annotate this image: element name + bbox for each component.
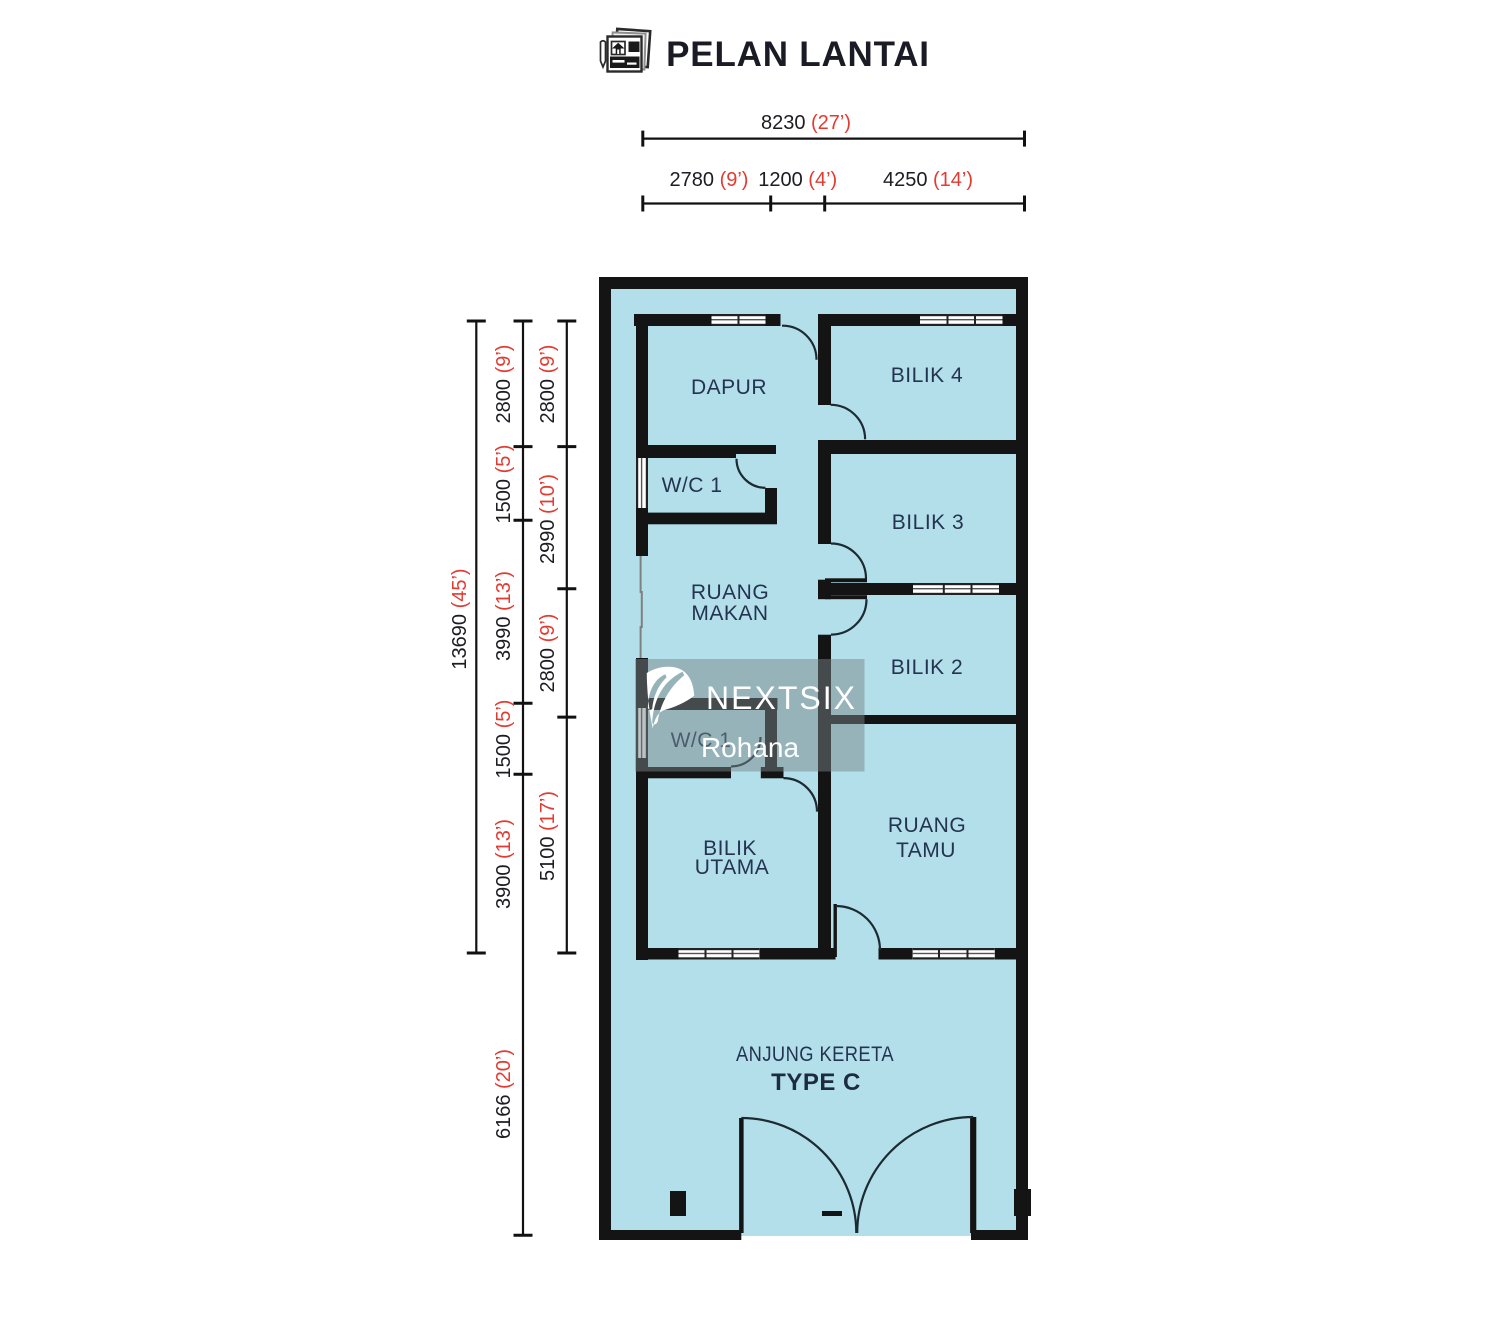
svg-text:MAKAN: MAKAN xyxy=(691,602,768,625)
svg-text:3990 (13’): 3990 (13’) xyxy=(493,571,515,661)
svg-text:BILIK 4: BILIK 4 xyxy=(891,364,963,387)
svg-text:TYPE C: TYPE C xyxy=(771,1069,861,1096)
svg-text:1500 (5’): 1500 (5’) xyxy=(493,445,515,524)
svg-text:ANJUNG KERETA: ANJUNG KERETA xyxy=(736,1043,894,1066)
svg-text:RUANG: RUANG xyxy=(691,581,769,604)
svg-text:6166 (20’): 6166 (20’) xyxy=(493,1049,515,1139)
svg-text:TAMU: TAMU xyxy=(896,839,956,862)
svg-text:2990 (10’): 2990 (10’) xyxy=(537,474,559,564)
svg-text:2800 (9’): 2800 (9’) xyxy=(537,345,559,424)
svg-text:2780 (9’): 2780 (9’) xyxy=(670,169,749,191)
svg-text:2800 (9’): 2800 (9’) xyxy=(537,614,559,693)
svg-text:5100 (17’): 5100 (17’) xyxy=(537,791,559,881)
svg-text:1200 (4’): 1200 (4’) xyxy=(758,169,837,191)
svg-text:3900 (13’): 3900 (13’) xyxy=(493,819,515,909)
svg-text:4250 (14’): 4250 (14’) xyxy=(883,169,973,191)
svg-text:13690 (45’): 13690 (45’) xyxy=(449,568,471,669)
svg-text:NEXTSIX: NEXTSIX xyxy=(706,680,857,716)
svg-text:BILIK 2: BILIK 2 xyxy=(891,656,963,679)
svg-text:PELAN LANTAI: PELAN LANTAI xyxy=(666,35,930,74)
svg-text:DAPUR: DAPUR xyxy=(691,376,767,399)
svg-text:UTAMA: UTAMA xyxy=(695,856,769,879)
svg-text:1500 (5’): 1500 (5’) xyxy=(493,700,515,779)
svg-text:8230 (27’): 8230 (27’) xyxy=(761,112,851,134)
svg-text:W/C 1: W/C 1 xyxy=(662,474,723,497)
svg-text:Rohana: Rohana xyxy=(701,732,800,763)
svg-text:2800 (9’): 2800 (9’) xyxy=(493,345,515,424)
svg-text:RUANG: RUANG xyxy=(888,814,966,837)
svg-text:BILIK 3: BILIK 3 xyxy=(892,511,964,534)
